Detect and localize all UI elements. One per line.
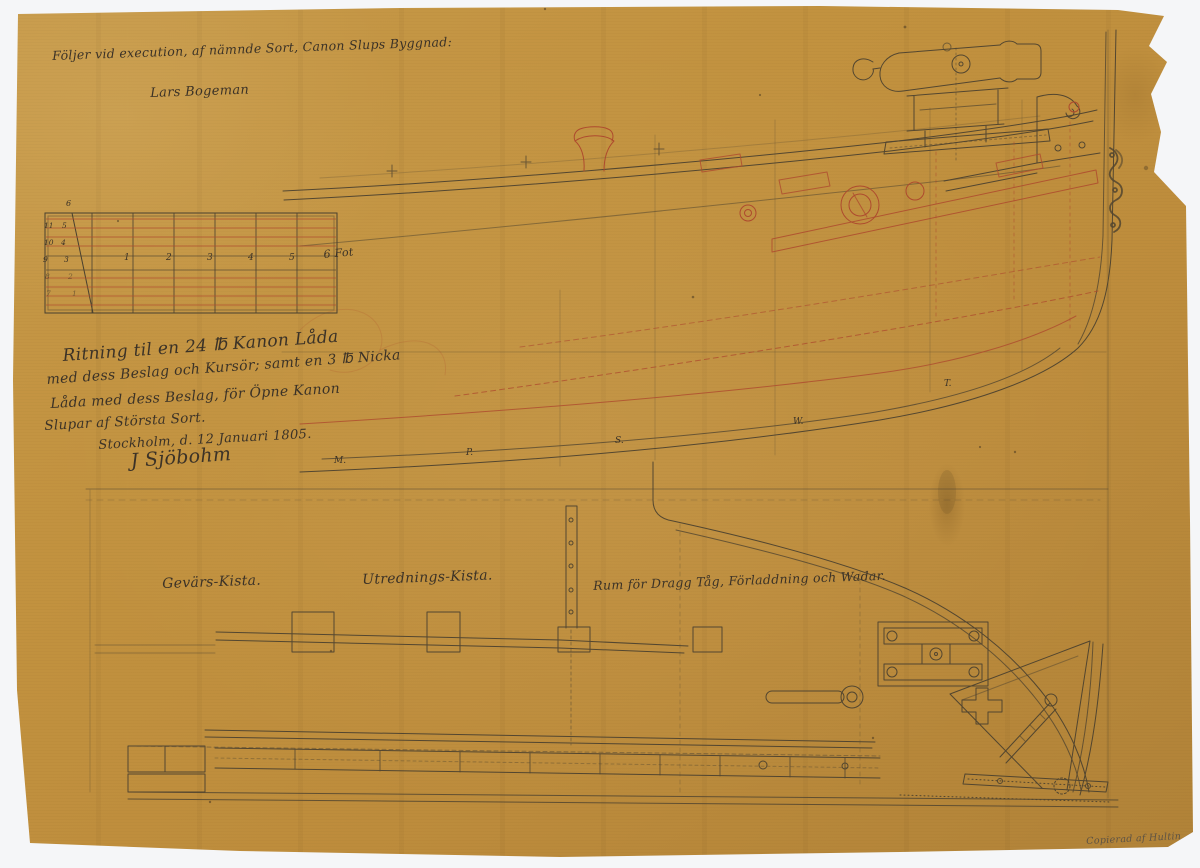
- upper-red-machinery: [300, 102, 1100, 424]
- label-gevars-kista: Gevärs-Kista.: [162, 573, 261, 592]
- scale-diag-top: 6: [66, 199, 71, 208]
- station-letter-p: P.: [466, 448, 473, 458]
- upper-profile-view: [86, 30, 1122, 798]
- cross-fitting: [962, 688, 1002, 724]
- scale-left-7: 7: [46, 289, 51, 298]
- paper-specks: [117, 8, 1148, 803]
- scale-diag-1: 1: [72, 289, 77, 298]
- scale-diag-5: 5: [62, 221, 67, 230]
- cannon: [853, 41, 1050, 160]
- scale-unit-label: 6 Fot: [323, 245, 354, 261]
- scale-left-11: 11: [44, 221, 54, 230]
- lower-profile-view: [86, 462, 1118, 807]
- scale-diag-3: 3: [64, 255, 69, 264]
- scale-left-9: 9: [43, 255, 48, 264]
- scale-left-8: 8: [45, 272, 50, 281]
- station-letter-m: M.: [334, 456, 346, 466]
- scanned-drawing-sheet: Följer vid execution, af nämnde Sort, Ca…: [0, 0, 1200, 868]
- scale-diag-4: 4: [61, 238, 66, 247]
- windlass: [878, 622, 988, 686]
- stem-ironwork: [1110, 148, 1122, 232]
- scale-left-10: 10: [44, 238, 54, 247]
- scale-tick-3: 3: [207, 253, 213, 263]
- handle-ring: [766, 686, 863, 708]
- scale-diag-2: 2: [68, 272, 73, 281]
- scale-tick-2: 2: [166, 253, 172, 263]
- red-bollard: [575, 136, 614, 171]
- station-letter-w: W.: [793, 417, 804, 427]
- station-letter-t: T.: [944, 379, 952, 389]
- scale-tick-5: 5: [289, 253, 295, 263]
- station-letter-s: S.: [615, 436, 624, 446]
- scale-bar: [45, 213, 337, 313]
- scale-tick-4: 4: [248, 253, 254, 263]
- scale-tick-1: 1: [124, 253, 130, 263]
